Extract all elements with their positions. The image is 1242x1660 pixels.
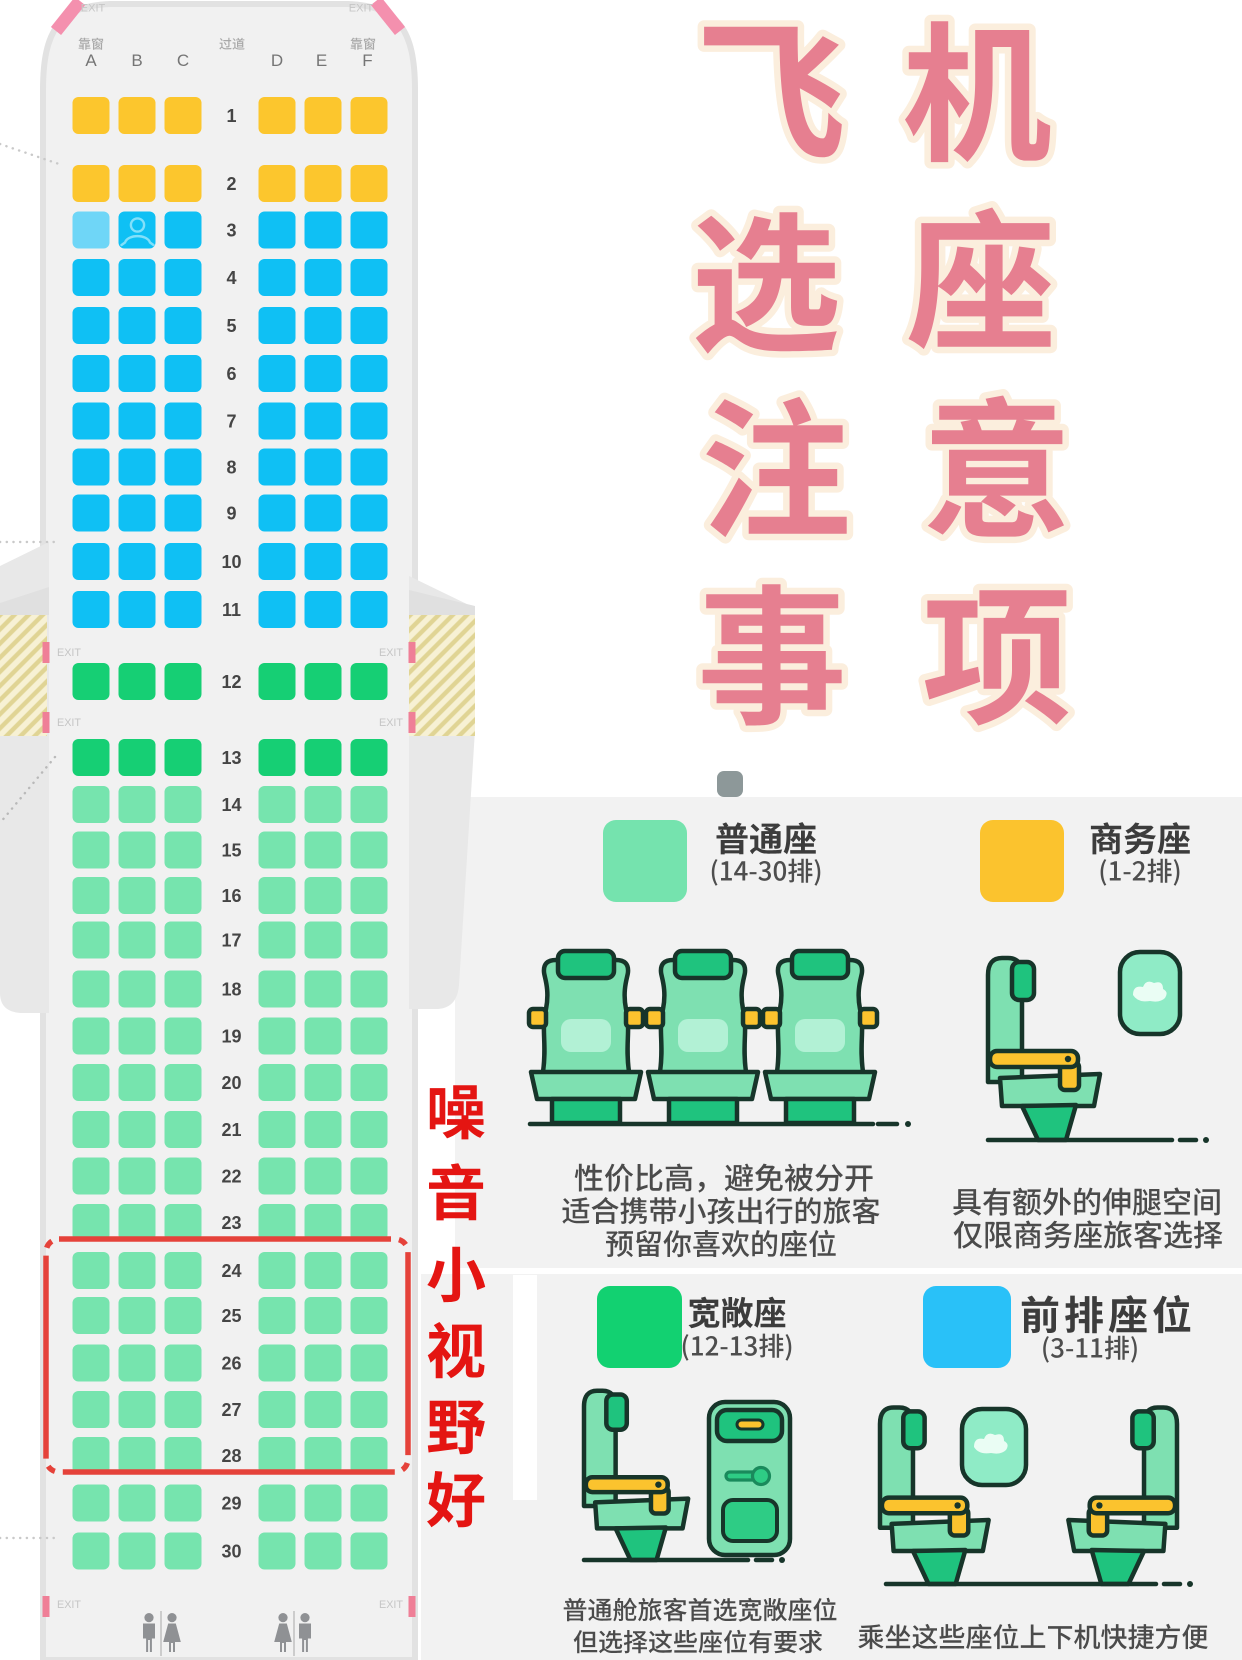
svg-text:EXIT: EXIT [81, 3, 106, 15]
svg-text:21: 21 [221, 1120, 241, 1140]
svg-text:30: 30 [221, 1542, 241, 1562]
svg-text:5: 5 [226, 316, 236, 336]
svg-text:EXIT: EXIT [379, 1599, 403, 1611]
svg-text:9: 9 [226, 504, 236, 524]
svg-text:7: 7 [226, 412, 236, 432]
svg-text:EXIT: EXIT [57, 717, 81, 729]
svg-text:15: 15 [221, 841, 241, 861]
svg-text:EXIT: EXIT [379, 647, 403, 659]
svg-text:EXIT: EXIT [349, 3, 374, 15]
svg-text:24: 24 [221, 1261, 241, 1281]
svg-text:10: 10 [221, 552, 241, 572]
svg-text:B: B [131, 51, 142, 70]
svg-text:A: A [85, 51, 97, 70]
svg-text:C: C [177, 51, 189, 70]
svg-text:19: 19 [221, 1027, 241, 1047]
svg-text:8: 8 [226, 458, 236, 478]
svg-text:11: 11 [222, 600, 241, 620]
svg-text:22: 22 [221, 1167, 241, 1187]
svg-text:20: 20 [221, 1073, 241, 1093]
svg-text:26: 26 [221, 1354, 241, 1374]
svg-text:D: D [271, 51, 283, 70]
svg-text:17: 17 [221, 931, 241, 951]
svg-text:23: 23 [221, 1213, 241, 1233]
svg-text:14: 14 [221, 795, 241, 815]
svg-text:6: 6 [226, 364, 236, 384]
svg-text:16: 16 [221, 886, 241, 906]
svg-text:EXIT: EXIT [379, 717, 403, 729]
svg-text:3: 3 [226, 221, 236, 241]
svg-text:EXIT: EXIT [57, 647, 81, 659]
svg-text:1: 1 [226, 106, 236, 126]
svg-text:12: 12 [221, 672, 241, 692]
svg-text:E: E [316, 51, 327, 70]
svg-text:25: 25 [221, 1306, 241, 1326]
svg-text:13: 13 [221, 748, 241, 768]
svg-text:2: 2 [226, 174, 236, 194]
svg-text:4: 4 [226, 268, 236, 288]
svg-text:28: 28 [221, 1446, 241, 1466]
svg-text:29: 29 [221, 1494, 241, 1514]
svg-text:EXIT: EXIT [57, 1599, 81, 1611]
svg-text:27: 27 [221, 1400, 241, 1420]
svg-text:F: F [362, 51, 372, 70]
svg-text:18: 18 [221, 980, 241, 1000]
